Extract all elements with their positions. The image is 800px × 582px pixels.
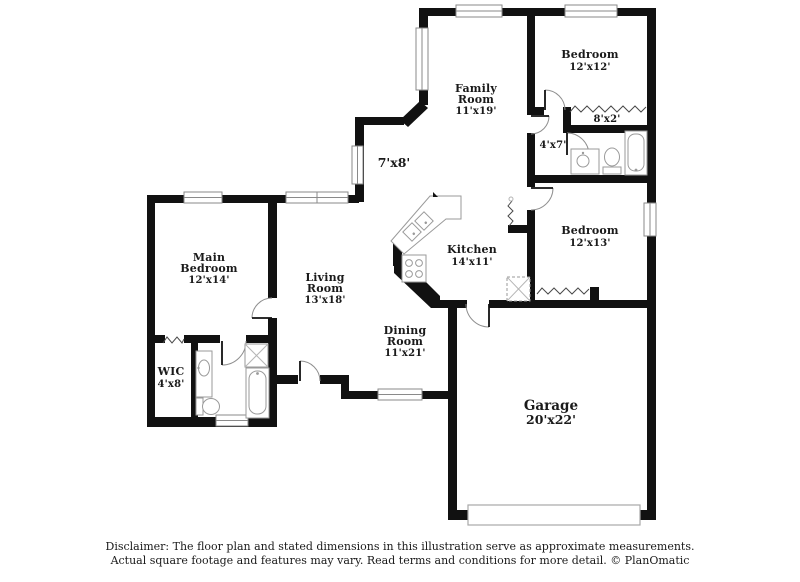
wall-segment [638,510,656,520]
wall-segment [590,287,599,304]
toilet-icon [603,148,621,174]
family-room-dims: 11'x19' [455,106,496,117]
disclaimer-line-1: Disclaimer: The floor plan and stated di… [0,540,800,554]
closet-zigzag-8x2 [570,106,646,112]
wall-segment [147,195,155,427]
window [286,192,348,203]
wall-segment [341,375,349,399]
floor-plan-drawing: Family Room 11'x19' Bedroom 12'x12' 8'x2… [0,0,800,582]
door-bedroom-top [545,90,565,110]
living-room-name-2: Room [307,282,343,295]
sink-vanity-icon [196,351,212,397]
wall-segment [647,8,656,520]
floor-plan-page: Family Room 11'x19' Bedroom 12'x12' 8'x2… [0,0,800,582]
wall-segment-diagonal [400,101,428,127]
stove-icon [402,255,426,282]
wall-segment [535,175,648,183]
wic-dims: 4'x8' [157,379,184,390]
wall-segment [448,308,457,520]
dining-room-dims: 11'x21' [384,348,425,359]
closet-zigzag-bedroom-right [537,288,589,294]
bathtub-icon [246,368,269,418]
living-room-dims: 13'x18' [304,295,345,306]
kitchen-name: Kitchen [447,243,497,256]
closet-zigzag-wic [163,337,184,343]
wall-segment [184,335,220,343]
bathtub-icon [625,131,647,175]
window [184,192,222,203]
family-room-name-2: Room [458,93,494,106]
nook-7x8-dims: 7'x8' [378,155,411,170]
closet-8x2-dims: 8'x2' [593,114,620,125]
wall-segment [357,117,404,125]
main-bedroom-name-2: Bedroom [180,262,238,275]
bedroom-top-dims: 12'x12' [569,62,610,73]
wall-segment [246,335,276,343]
main-bedroom-dims: 12'x14' [188,275,229,286]
wall-segment [508,225,530,233]
window [378,389,422,400]
wall-segment [268,195,277,298]
window [416,28,428,90]
door-garage [466,304,489,327]
pantry-icon [507,277,530,301]
wall-segment [277,375,298,384]
bedroom-top-name: Bedroom [561,48,619,61]
fixtures [196,131,647,418]
wall-segment [527,16,535,107]
door-bedroom-right [531,188,553,210]
wall-segment [320,375,341,384]
door-entry [300,361,320,381]
window [456,5,502,17]
wall-segment [527,107,544,115]
laundry-mark [509,197,513,201]
kitchen-dims: 14'x11' [451,257,492,268]
disclaimer: Disclaimer: The floor plan and stated di… [0,540,800,568]
window [565,5,617,17]
garage-dims: 20'x22' [526,412,576,427]
room-labels: Family Room 11'x19' Bedroom 12'x12' 8'x2… [157,48,621,427]
disclaimer-line-2: Actual square footage and features may v… [0,554,800,568]
door-main-bedroom [252,298,272,318]
closet-zigzag-laundry [508,201,513,226]
wall-segment [420,8,656,16]
shower-icon [245,344,268,367]
dining-room-name-2: Room [387,335,423,348]
wall-segment [527,133,535,187]
wall-segment [489,300,647,308]
hall-4x7-dims: 4'x7' [539,140,566,151]
window [352,146,363,184]
garage-door [468,505,640,525]
door-hall [531,116,549,134]
window [644,203,656,236]
sink-vanity-icon [571,149,599,174]
window [216,415,248,426]
door-main-bath [222,341,246,365]
wic-name: WIC [157,365,185,378]
bedroom-right-dims: 12'x13' [569,238,610,249]
toilet-icon [196,398,220,415]
bedroom-right-name: Bedroom [561,224,619,237]
wall-segment [448,510,470,520]
